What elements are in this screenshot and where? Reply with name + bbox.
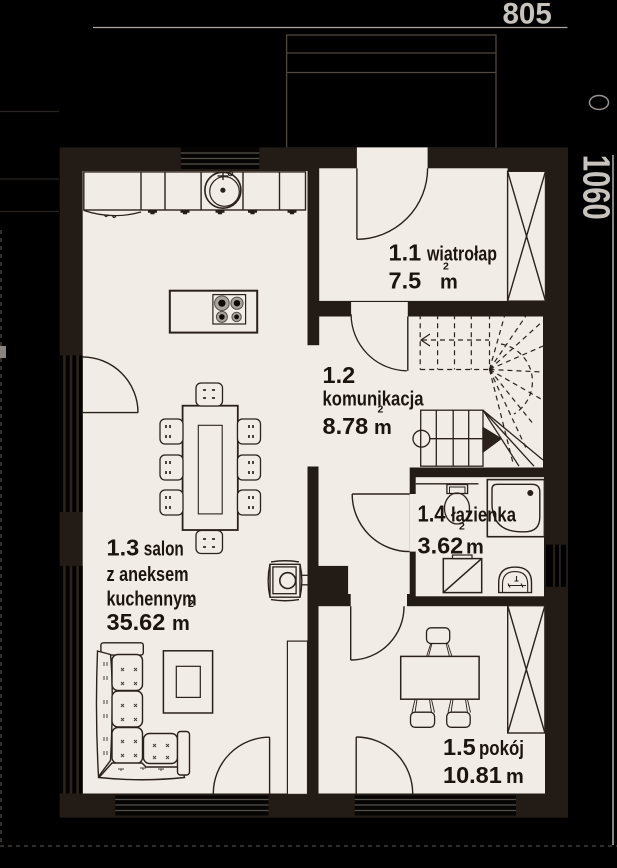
svg-text:10.81: 10.81	[443, 762, 502, 788]
svg-text:komunikacja: komunikacja	[323, 389, 425, 411]
svg-text:35.62: 35.62	[107, 609, 166, 635]
svg-text:1.1: 1.1	[389, 240, 422, 266]
svg-text:1060: 1060	[575, 155, 617, 220]
svg-text:8.78: 8.78	[323, 413, 369, 439]
svg-text:salon: salon	[144, 538, 184, 560]
svg-text:7.5: 7.5	[389, 268, 422, 294]
svg-text:805: 805	[503, 0, 552, 31]
svg-text:2: 2	[188, 598, 194, 610]
svg-text:2: 2	[459, 521, 465, 533]
svg-text:m: m	[172, 613, 190, 635]
svg-text:2: 2	[378, 404, 384, 416]
svg-text:1.4: 1.4	[418, 501, 446, 527]
svg-text:wiatrołap: wiatrołap	[426, 244, 497, 266]
svg-text:pokój: pokój	[479, 738, 524, 760]
svg-text:1.5: 1.5	[443, 734, 476, 760]
svg-text:z aneksem: z aneksem	[107, 564, 189, 586]
svg-text:1.3: 1.3	[107, 534, 140, 560]
svg-text:m: m	[374, 417, 392, 439]
svg-text:m: m	[506, 766, 524, 788]
svg-text:kuchennym: kuchennym	[107, 588, 197, 610]
svg-text:1.2: 1.2	[323, 362, 356, 388]
svg-text:m: m	[440, 272, 458, 294]
